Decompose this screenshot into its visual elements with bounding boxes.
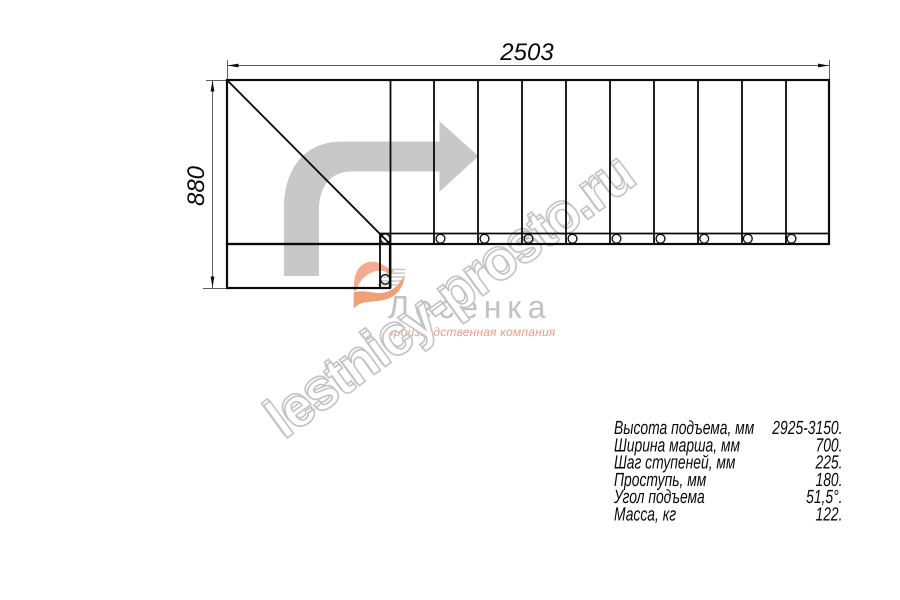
svg-text:Масса, кг: Масса, кг xyxy=(614,505,676,526)
svg-text:880: 880 xyxy=(183,165,210,206)
svg-text:2503: 2503 xyxy=(499,39,554,66)
svg-text:122.: 122. xyxy=(816,505,843,526)
